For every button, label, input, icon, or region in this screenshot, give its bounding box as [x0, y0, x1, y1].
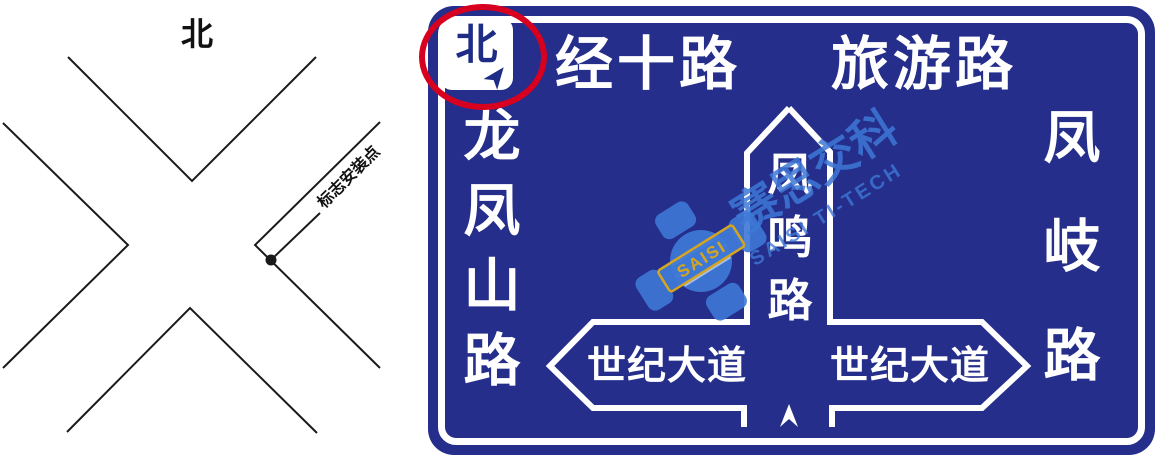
road-name-fengqi: 凤 岐 路: [1042, 110, 1102, 385]
road-char: 路: [464, 333, 521, 390]
road-char: 凤: [464, 183, 521, 240]
north-arrow-icon: [484, 65, 510, 91]
road-char: 龙: [464, 108, 521, 165]
road-corner-left: [3, 123, 128, 368]
intersection-diagram: 北 标志安装点: [0, 0, 420, 463]
road-char: 山: [464, 258, 521, 315]
logo-banner: SAISI: [657, 225, 745, 293]
logo-globe-lines: [665, 232, 737, 289]
north-badge: 北: [440, 18, 513, 90]
north-badge-label: 北: [440, 24, 513, 66]
avenue-name-right: 世纪大道: [830, 347, 990, 386]
road-name-jingshi: 经十路: [555, 36, 741, 94]
logo-banner-text: SAISI: [674, 237, 730, 282]
road-char: 路: [767, 278, 812, 323]
road-name-longfengshan: 龙 凤 山 路: [462, 108, 522, 390]
north-label: 北: [181, 16, 213, 52]
page: 北 标志安装点 经十路 旅游路 龙 凤 山 路 凤 岐 路: [0, 0, 1158, 463]
avenue-name-left: 世纪大道: [587, 347, 747, 386]
approach-arrow-icon: [780, 404, 798, 427]
road-char: 凤: [1044, 110, 1101, 167]
road-corner-bottom: [67, 308, 317, 433]
logo-globe: [670, 230, 732, 292]
road-char: 路: [1044, 328, 1101, 385]
road-corner-top: [68, 57, 316, 181]
road-name-lvyou: 旅游路: [831, 36, 1017, 94]
guide-sign: 经十路 旅游路 龙 凤 山 路 凤 岐 路 凤 鸣 路 世纪大道 世纪大道: [428, 6, 1155, 455]
road-char: 岐: [1044, 219, 1101, 276]
